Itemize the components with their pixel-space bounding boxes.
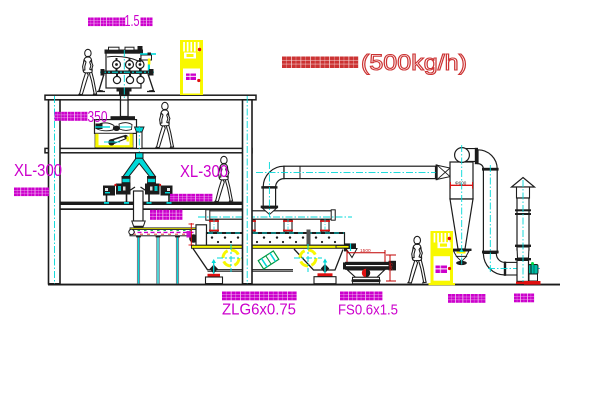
svg-text:1500: 1500 (360, 248, 371, 254)
svg-text:350: 350 (88, 109, 108, 126)
svg-text:Φ600: Φ600 (455, 181, 467, 186)
svg-text:345: 345 (389, 263, 395, 271)
svg-text:FS0.6x1.5: FS0.6x1.5 (338, 302, 398, 319)
svg-text:(500kg/h): (500kg/h) (361, 50, 467, 75)
svg-text:1.5: 1.5 (125, 13, 140, 30)
svg-text:XL-300: XL-300 (14, 160, 62, 180)
svg-text:ZLG6x0.75: ZLG6x0.75 (222, 302, 296, 319)
svg-text:XL-300: XL-300 (180, 161, 228, 181)
